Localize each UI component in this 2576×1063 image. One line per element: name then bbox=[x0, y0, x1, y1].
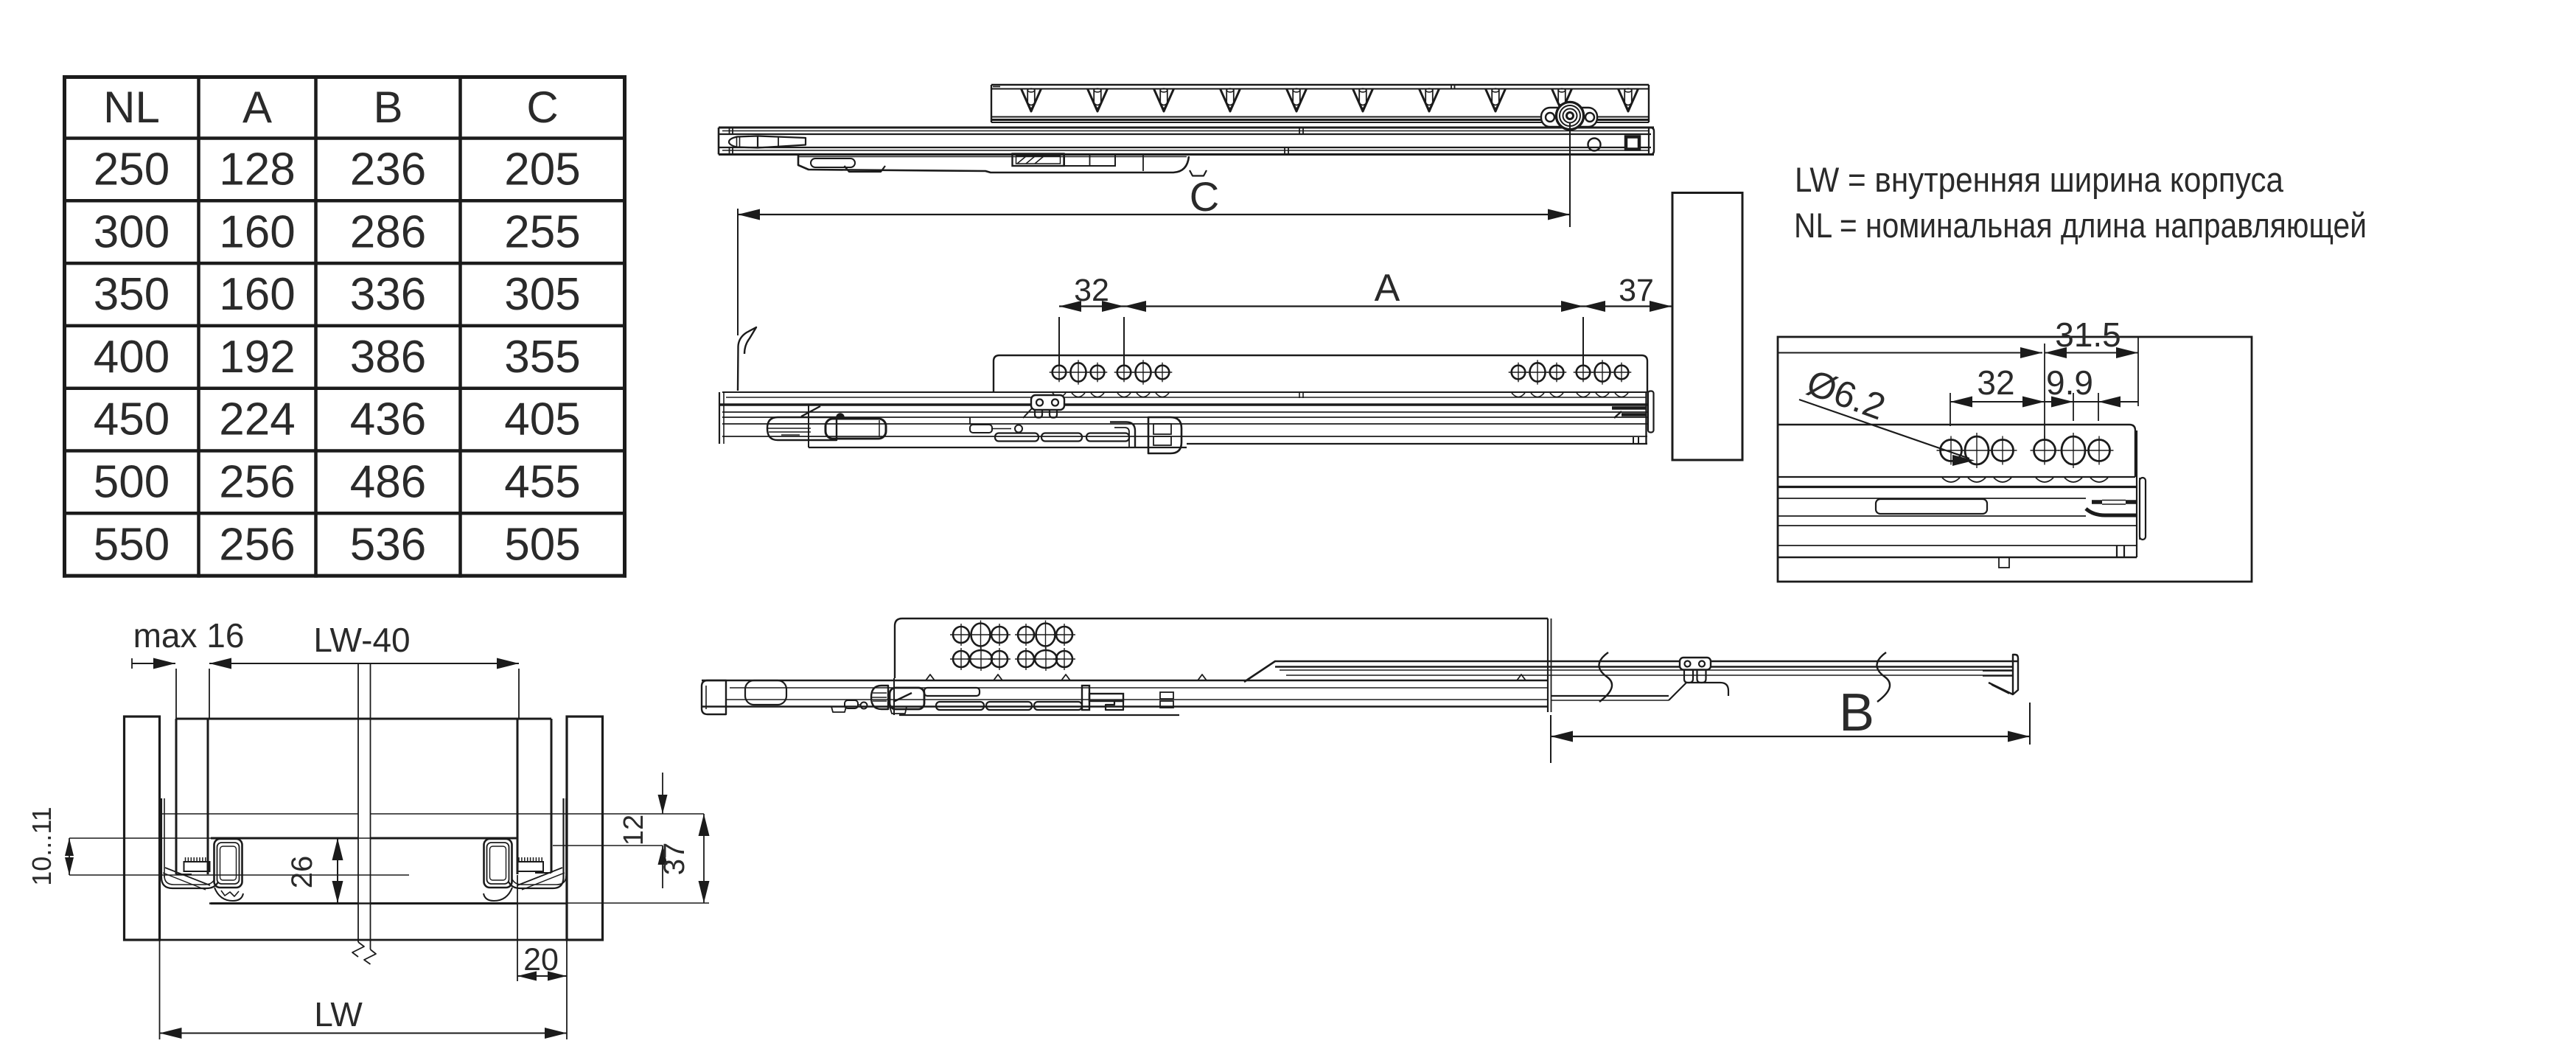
svg-text:32: 32 bbox=[1977, 363, 2014, 402]
svg-text:486: 486 bbox=[350, 457, 426, 508]
svg-text:450: 450 bbox=[94, 394, 170, 445]
svg-text:336: 336 bbox=[350, 269, 426, 320]
svg-text:160: 160 bbox=[219, 269, 295, 320]
svg-text:536: 536 bbox=[350, 519, 426, 570]
svg-text:C: C bbox=[526, 83, 558, 132]
svg-text:20: 20 bbox=[523, 942, 559, 977]
svg-text:A: A bbox=[1375, 267, 1400, 310]
svg-text:LW = внутренняя ширина корпуса: LW = внутренняя ширина корпуса bbox=[1795, 160, 2284, 199]
svg-text:LW-40: LW-40 bbox=[313, 621, 410, 659]
svg-text:32: 32 bbox=[1074, 273, 1109, 308]
svg-text:236: 236 bbox=[350, 144, 426, 195]
svg-text:436: 436 bbox=[350, 394, 426, 445]
svg-text:350: 350 bbox=[94, 269, 170, 320]
svg-text:B: B bbox=[373, 83, 402, 132]
svg-text:B: B bbox=[1839, 683, 1874, 742]
svg-text:C: C bbox=[1190, 173, 1219, 220]
svg-text:31.5: 31.5 bbox=[2055, 316, 2121, 354]
svg-text:LW: LW bbox=[314, 995, 363, 1034]
svg-text:386: 386 bbox=[350, 332, 426, 383]
svg-text:10...11: 10...11 bbox=[27, 806, 57, 885]
svg-text:224: 224 bbox=[219, 394, 295, 445]
svg-text:12: 12 bbox=[618, 815, 649, 846]
svg-text:550: 550 bbox=[94, 519, 170, 570]
svg-text:300: 300 bbox=[94, 206, 170, 257]
svg-text:26: 26 bbox=[286, 856, 318, 889]
svg-text:9.9: 9.9 bbox=[2046, 363, 2093, 402]
svg-text:505: 505 bbox=[504, 519, 580, 570]
svg-text:400: 400 bbox=[94, 332, 170, 383]
svg-text:256: 256 bbox=[219, 457, 295, 508]
svg-text:192: 192 bbox=[219, 332, 295, 383]
svg-text:A: A bbox=[242, 83, 272, 132]
svg-text:NL: NL bbox=[103, 83, 160, 132]
svg-text:286: 286 bbox=[350, 206, 426, 257]
svg-text:355: 355 bbox=[504, 332, 580, 383]
svg-text:37: 37 bbox=[1619, 273, 1654, 308]
svg-text:256: 256 bbox=[219, 519, 295, 570]
svg-text:500: 500 bbox=[94, 457, 170, 508]
svg-text:max 16: max 16 bbox=[133, 616, 245, 655]
svg-text:305: 305 bbox=[504, 269, 580, 320]
svg-text:NL = номинальная длина направл: NL = номинальная длина направляющей bbox=[1794, 206, 2367, 245]
svg-text:160: 160 bbox=[219, 206, 295, 257]
svg-text:250: 250 bbox=[94, 144, 170, 195]
svg-text:405: 405 bbox=[504, 394, 580, 445]
svg-text:255: 255 bbox=[504, 206, 580, 257]
svg-text:205: 205 bbox=[504, 144, 580, 195]
svg-text:455: 455 bbox=[504, 457, 580, 508]
svg-text:128: 128 bbox=[219, 144, 295, 195]
svg-text:37: 37 bbox=[658, 843, 691, 876]
